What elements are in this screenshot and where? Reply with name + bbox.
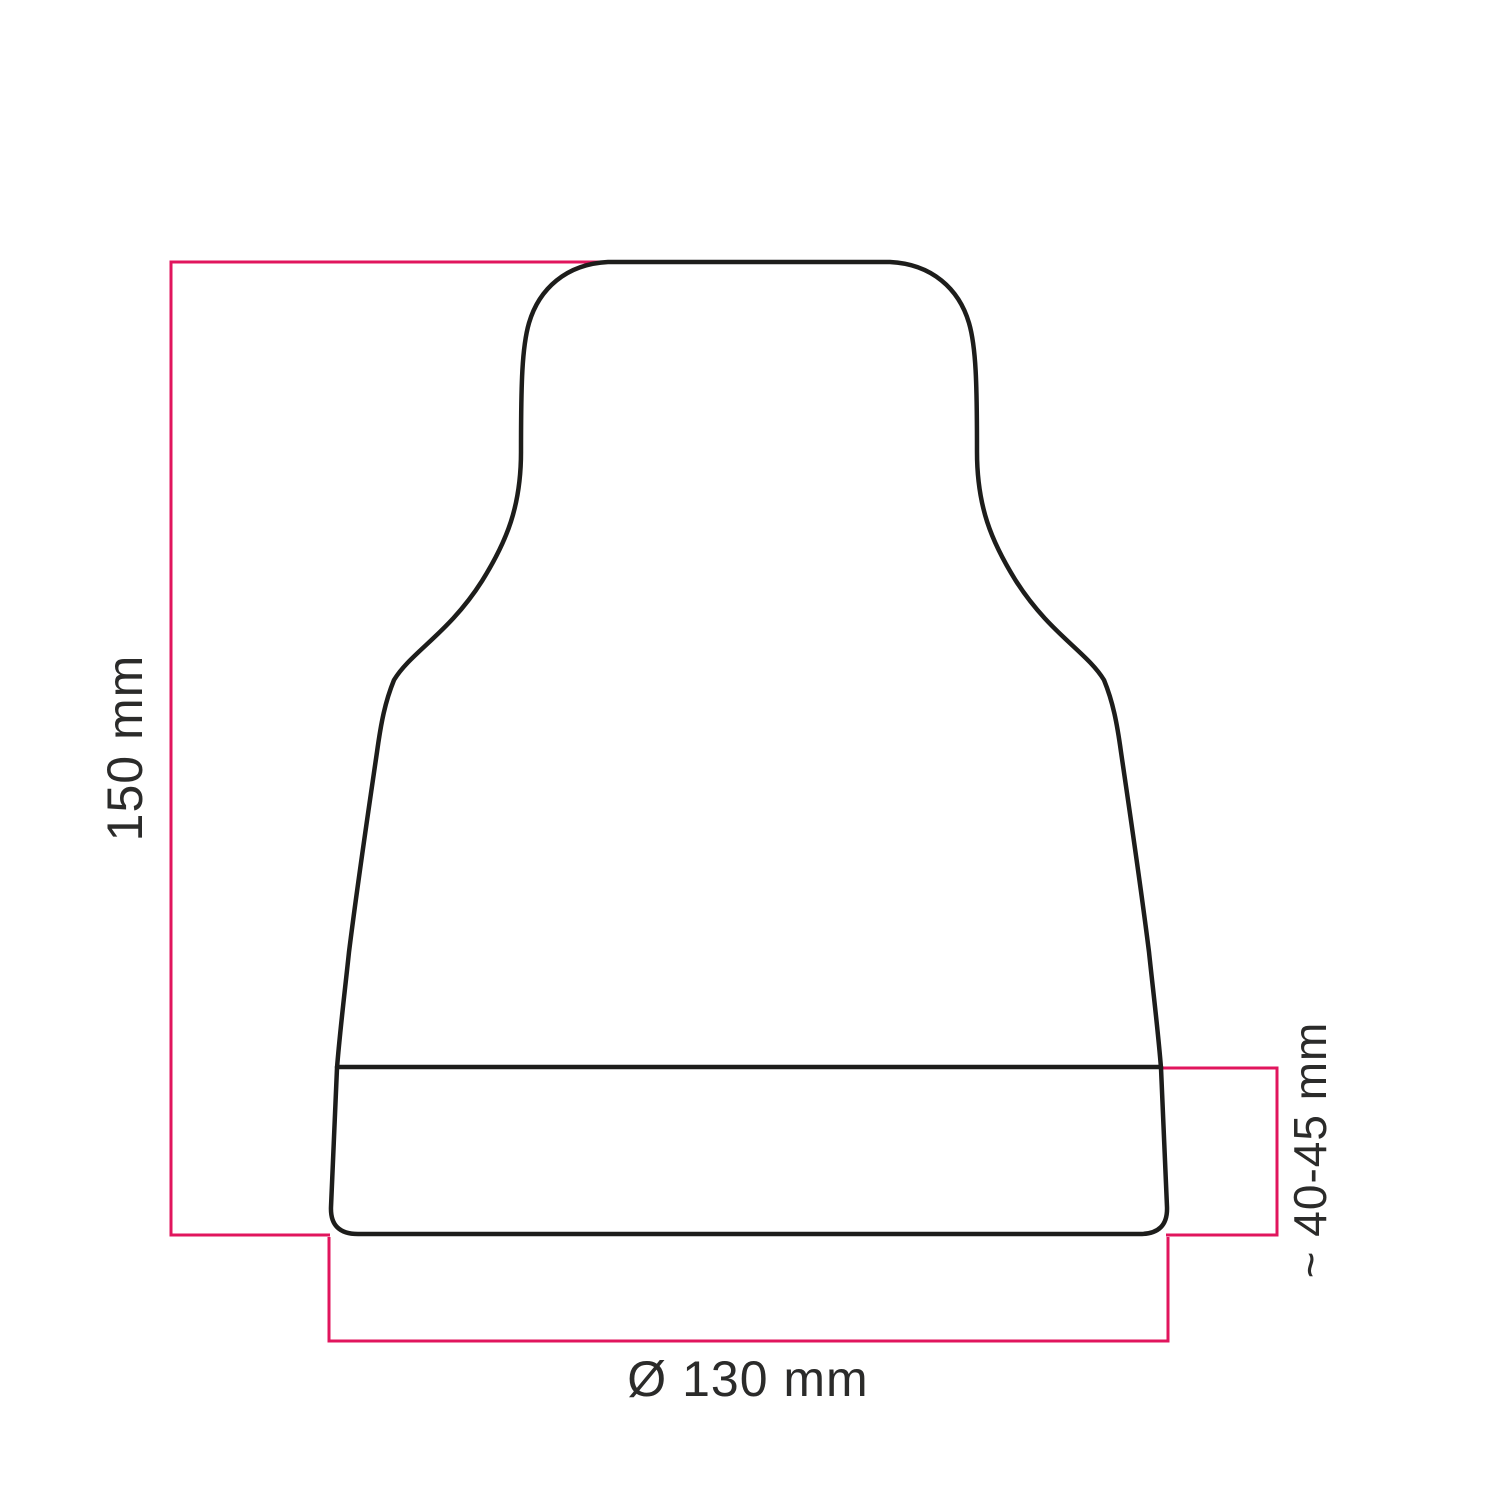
diameter-dimension-label: Ø 130 mm xyxy=(627,1351,868,1407)
height-dimension-line xyxy=(171,262,600,1235)
height-dimension-label: 150 mm xyxy=(97,655,153,842)
diameter-dimension-line xyxy=(329,1237,1168,1341)
dimension-drawing-svg: 150 mm ~ 40-45 mm Ø 130 mm xyxy=(0,0,1500,1500)
lampshade-outline-group xyxy=(331,262,1167,1234)
base-band-dimension-line xyxy=(1160,1068,1277,1235)
drawing-canvas: 150 mm ~ 40-45 mm Ø 130 mm xyxy=(0,0,1500,1500)
lampshade-outline xyxy=(331,262,1167,1234)
base-band-dimension-label: ~ 40-45 mm xyxy=(1284,1022,1336,1279)
dimension-lines-group xyxy=(171,262,1277,1341)
